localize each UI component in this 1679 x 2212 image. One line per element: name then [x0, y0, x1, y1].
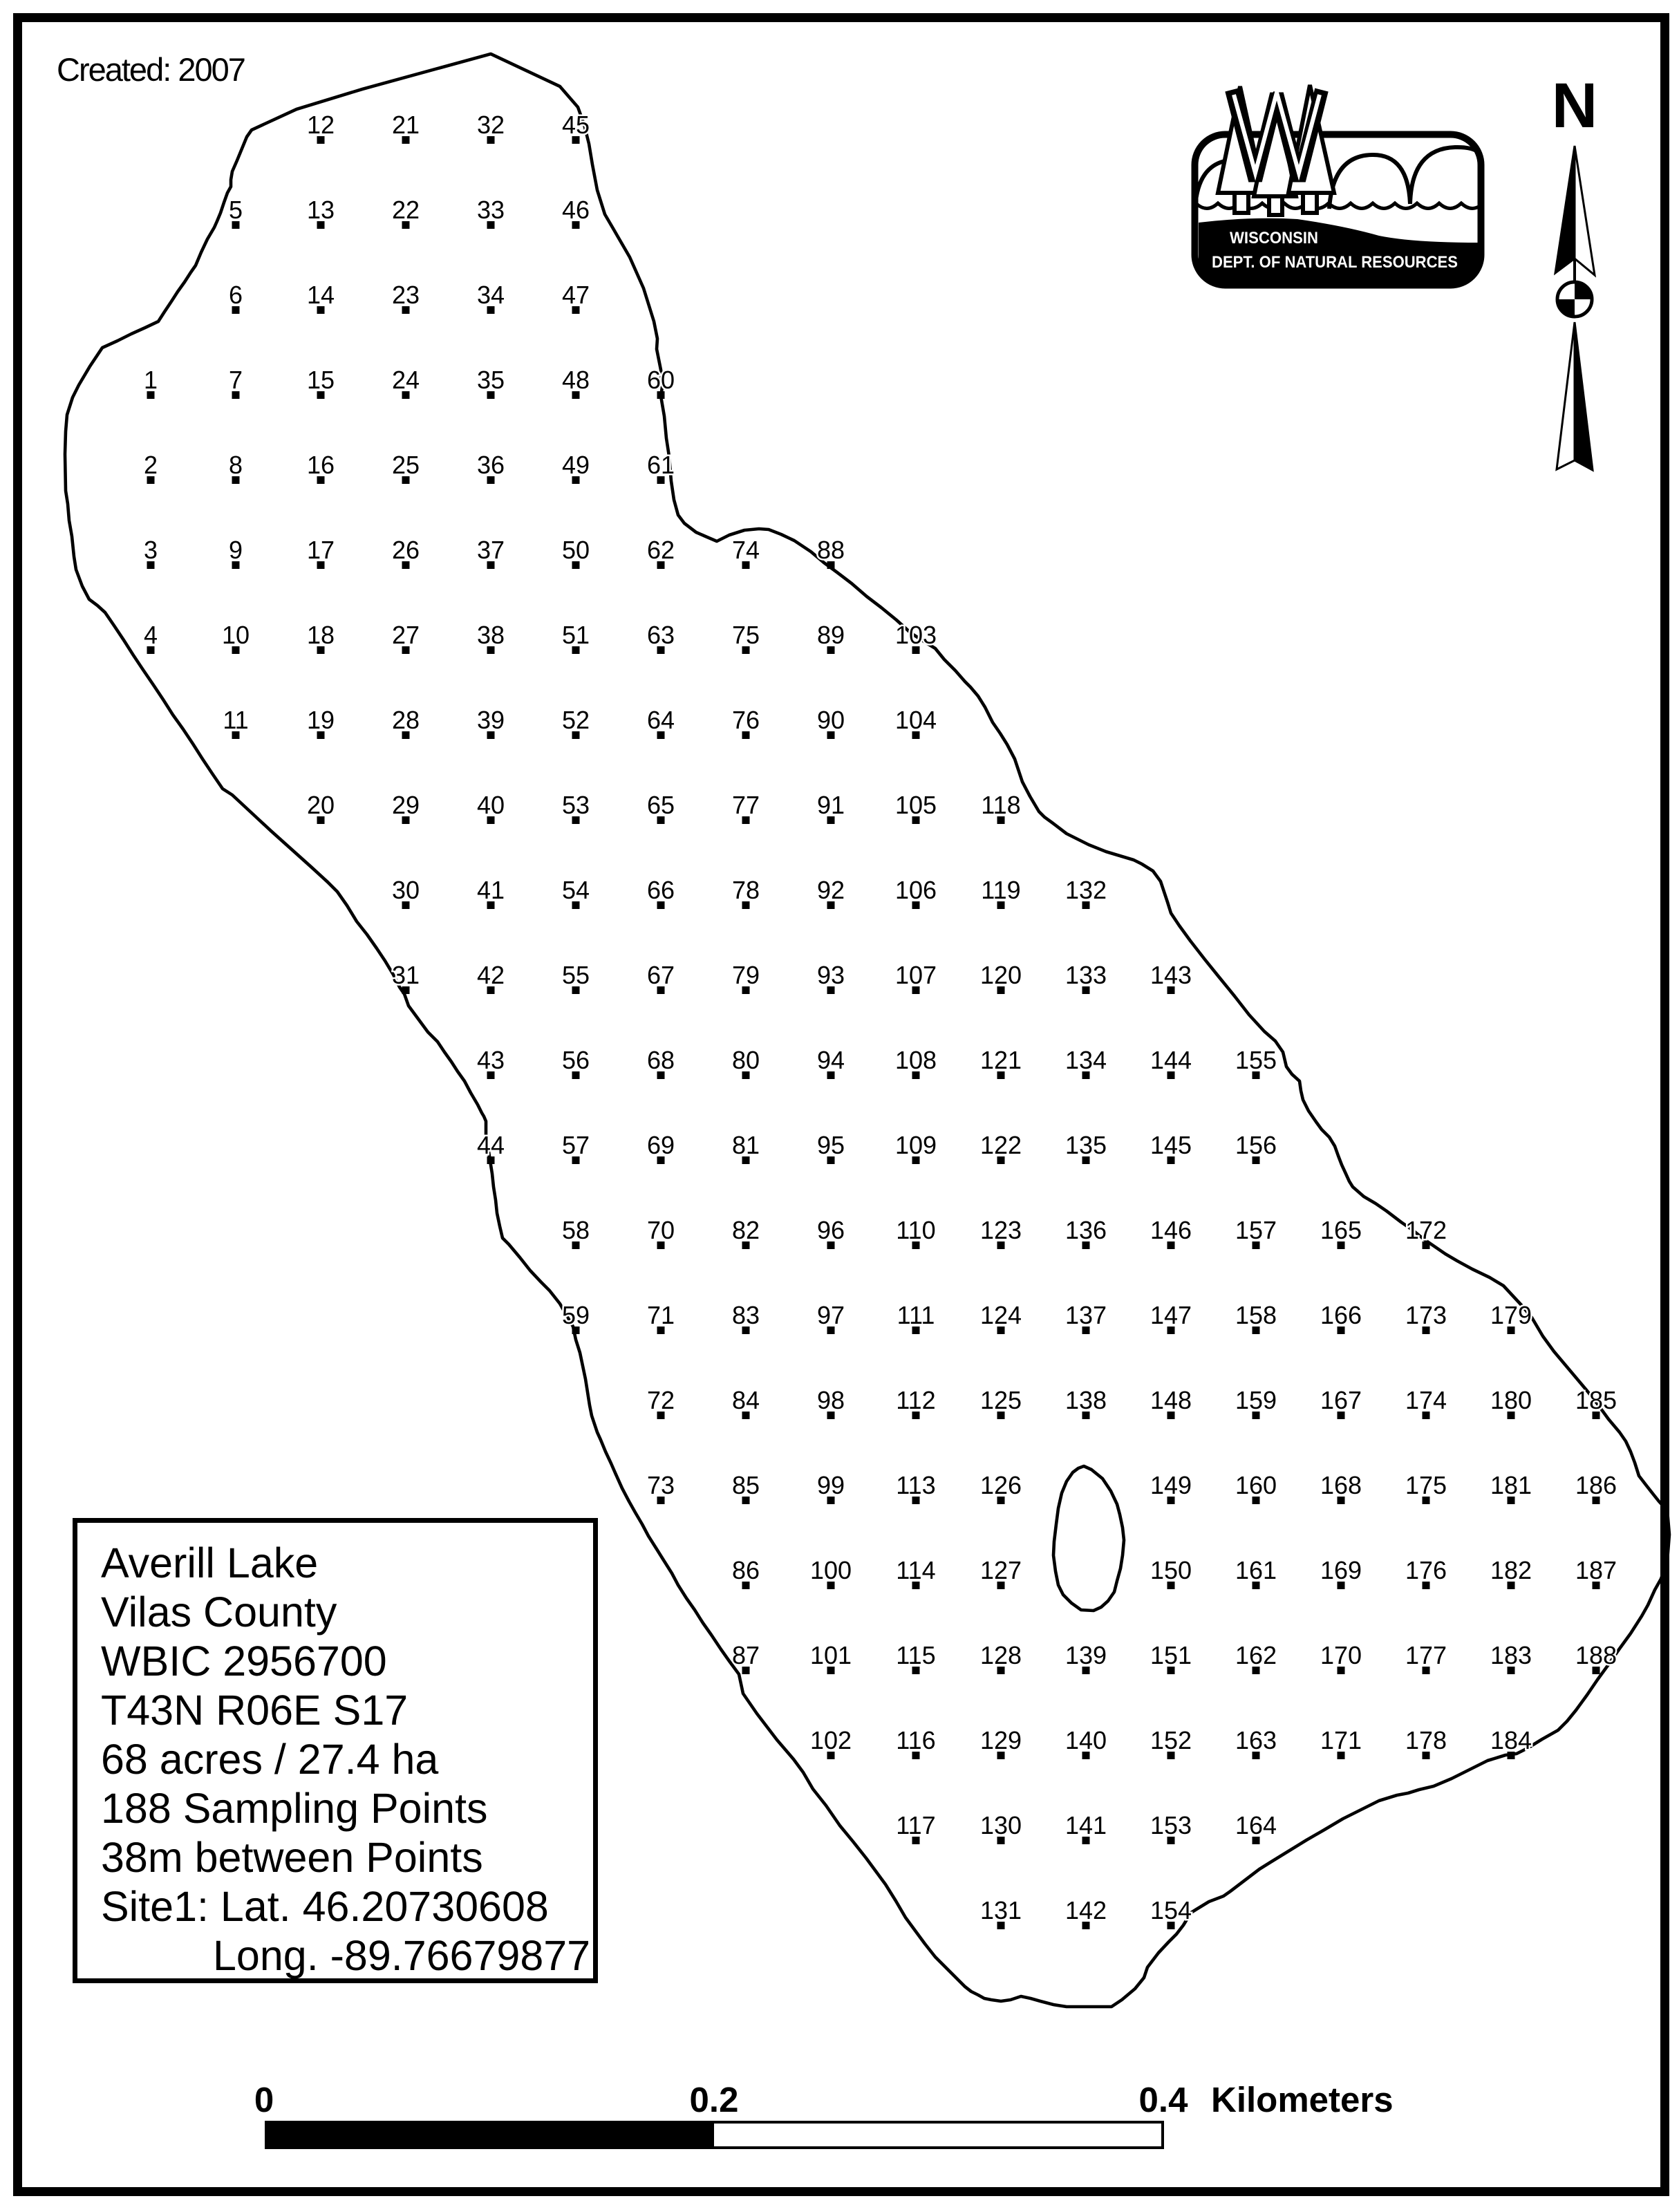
svg-text:95: 95 [817, 1131, 845, 1159]
svg-text:102: 102 [810, 1726, 852, 1754]
svg-text:132: 132 [1065, 876, 1107, 904]
svg-text:32: 32 [477, 111, 505, 139]
svg-text:76: 76 [732, 706, 760, 734]
svg-text:159: 159 [1235, 1386, 1277, 1414]
svg-text:15: 15 [307, 366, 335, 394]
svg-text:DEPT. OF NATURAL RESOURCES: DEPT. OF NATURAL RESOURCES [1212, 253, 1458, 272]
svg-text:58: 58 [562, 1216, 590, 1244]
svg-text:97: 97 [817, 1301, 845, 1329]
svg-text:48: 48 [562, 366, 590, 394]
svg-text:162: 162 [1235, 1641, 1277, 1669]
svg-text:129: 129 [980, 1726, 1022, 1754]
svg-text:56: 56 [562, 1046, 590, 1074]
svg-text:14: 14 [307, 281, 335, 309]
svg-text:125: 125 [980, 1386, 1022, 1414]
svg-text:164: 164 [1235, 1811, 1277, 1839]
svg-text:166: 166 [1320, 1301, 1362, 1329]
svg-text:107: 107 [895, 961, 937, 989]
svg-text:37: 37 [477, 536, 505, 564]
svg-text:87: 87 [732, 1641, 760, 1669]
svg-text:121: 121 [980, 1046, 1022, 1074]
svg-text:188 Sampling Points: 188 Sampling Points [101, 1785, 488, 1832]
svg-text:Site1: Lat. 46.20730608: Site1: Lat. 46.20730608 [101, 1883, 549, 1930]
svg-text:T43N R06E S17: T43N R06E S17 [101, 1687, 408, 1734]
svg-text:59: 59 [562, 1301, 590, 1329]
svg-text:124: 124 [980, 1301, 1022, 1329]
svg-text:22: 22 [392, 196, 420, 224]
svg-text:187: 187 [1575, 1556, 1617, 1584]
svg-text:180: 180 [1490, 1386, 1532, 1414]
svg-text:67: 67 [647, 961, 675, 989]
svg-text:160: 160 [1235, 1471, 1277, 1499]
svg-text:105: 105 [895, 791, 937, 819]
svg-text:77: 77 [732, 791, 760, 819]
svg-text:35: 35 [477, 366, 505, 394]
svg-text:51: 51 [562, 621, 590, 649]
svg-text:41: 41 [477, 876, 505, 904]
svg-text:172: 172 [1405, 1216, 1447, 1244]
svg-text:62: 62 [647, 536, 675, 564]
svg-text:27: 27 [392, 621, 420, 649]
svg-text:111: 111 [897, 1301, 935, 1329]
svg-text:176: 176 [1405, 1556, 1447, 1584]
svg-text:40: 40 [477, 791, 505, 819]
svg-text:33: 33 [477, 196, 505, 224]
svg-text:152: 152 [1150, 1726, 1192, 1754]
svg-text:147: 147 [1150, 1301, 1192, 1329]
svg-text:183: 183 [1490, 1641, 1532, 1669]
svg-text:175: 175 [1405, 1471, 1447, 1499]
svg-text:117: 117 [896, 1811, 935, 1839]
svg-text:109: 109 [895, 1131, 937, 1159]
svg-text:64: 64 [647, 706, 675, 734]
svg-text:12: 12 [307, 111, 335, 139]
svg-text:61: 61 [647, 451, 675, 479]
svg-text:0: 0 [254, 2080, 274, 2119]
svg-text:179: 179 [1490, 1301, 1532, 1329]
svg-text:90: 90 [817, 706, 845, 734]
svg-text:70: 70 [647, 1216, 675, 1244]
svg-text:44: 44 [477, 1131, 505, 1159]
svg-text:57: 57 [562, 1131, 590, 1159]
svg-text:169: 169 [1320, 1556, 1362, 1584]
svg-text:0.4: 0.4 [1139, 2080, 1189, 2119]
svg-text:29: 29 [392, 791, 420, 819]
svg-text:131: 131 [980, 1896, 1022, 1924]
svg-text:88: 88 [817, 536, 845, 564]
svg-text:140: 140 [1065, 1726, 1107, 1754]
svg-text:154: 154 [1150, 1896, 1192, 1924]
svg-text:146: 146 [1150, 1216, 1192, 1244]
svg-text:167: 167 [1320, 1386, 1362, 1414]
svg-text:78: 78 [732, 876, 760, 904]
svg-text:24: 24 [392, 366, 420, 394]
svg-text:145: 145 [1150, 1131, 1192, 1159]
svg-text:36: 36 [477, 451, 505, 479]
svg-text:177: 177 [1405, 1641, 1447, 1669]
svg-text:N: N [1552, 71, 1597, 141]
svg-text:81: 81 [732, 1131, 760, 1159]
svg-text:136: 136 [1065, 1216, 1107, 1244]
svg-text:43: 43 [477, 1046, 505, 1074]
svg-text:7: 7 [229, 366, 243, 394]
svg-text:94: 94 [817, 1046, 845, 1074]
svg-text:Kilometers: Kilometers [1211, 2080, 1394, 2119]
svg-text:49: 49 [562, 451, 590, 479]
svg-text:113: 113 [896, 1471, 935, 1499]
svg-text:163: 163 [1235, 1726, 1277, 1754]
svg-text:84: 84 [732, 1386, 760, 1414]
svg-text:91: 91 [817, 791, 845, 819]
svg-text:114: 114 [896, 1556, 935, 1584]
svg-text:54: 54 [562, 876, 590, 904]
svg-text:Vilas County: Vilas County [101, 1588, 337, 1635]
svg-text:110: 110 [896, 1216, 935, 1244]
svg-text:127: 127 [980, 1556, 1022, 1584]
svg-text:42: 42 [477, 961, 505, 989]
svg-text:80: 80 [732, 1046, 760, 1074]
svg-text:11: 11 [223, 706, 248, 734]
svg-text:153: 153 [1150, 1811, 1192, 1839]
svg-text:50: 50 [562, 536, 590, 564]
svg-text:134: 134 [1065, 1046, 1107, 1074]
svg-text:55: 55 [562, 961, 590, 989]
svg-text:68 acres / 27.4 ha: 68 acres / 27.4 ha [101, 1736, 438, 1783]
svg-text:157: 157 [1235, 1216, 1277, 1244]
svg-text:1: 1 [144, 366, 158, 394]
svg-text:178: 178 [1405, 1726, 1447, 1754]
svg-text:89: 89 [817, 621, 845, 649]
svg-text:99: 99 [817, 1471, 845, 1499]
svg-text:148: 148 [1150, 1386, 1192, 1414]
svg-text:4: 4 [144, 621, 158, 649]
svg-text:WISCONSIN: WISCONSIN [1230, 229, 1318, 247]
svg-text:171: 171 [1320, 1726, 1362, 1754]
svg-text:151: 151 [1150, 1641, 1192, 1669]
svg-text:144: 144 [1150, 1046, 1192, 1074]
svg-text:5: 5 [229, 196, 243, 224]
svg-text:93: 93 [817, 961, 845, 989]
svg-text:39: 39 [477, 706, 505, 734]
svg-text:9: 9 [229, 536, 243, 564]
svg-text:150: 150 [1150, 1556, 1192, 1584]
svg-text:69: 69 [647, 1131, 675, 1159]
svg-text:181: 181 [1490, 1471, 1532, 1499]
svg-text:98: 98 [817, 1386, 845, 1414]
svg-text:25: 25 [392, 451, 420, 479]
svg-text:16: 16 [307, 451, 335, 479]
svg-text:0.2: 0.2 [690, 2080, 739, 2119]
svg-text:18: 18 [307, 621, 335, 649]
svg-text:72: 72 [647, 1386, 675, 1414]
svg-text:158: 158 [1235, 1301, 1277, 1329]
svg-text:139: 139 [1065, 1641, 1107, 1669]
svg-text:Averill Lake: Averill Lake [101, 1539, 318, 1586]
svg-text:28: 28 [392, 706, 420, 734]
svg-text:135: 135 [1065, 1131, 1107, 1159]
svg-text:112: 112 [896, 1386, 935, 1414]
svg-text:63: 63 [647, 621, 675, 649]
svg-text:38m between Points: 38m between Points [101, 1834, 483, 1881]
svg-text:103: 103 [895, 621, 937, 649]
svg-text:115: 115 [896, 1641, 935, 1669]
svg-text:17: 17 [307, 536, 335, 564]
svg-text:123: 123 [980, 1216, 1022, 1244]
svg-text:137: 137 [1065, 1301, 1107, 1329]
svg-text:185: 185 [1575, 1386, 1617, 1414]
svg-text:141: 141 [1065, 1811, 1107, 1839]
svg-text:52: 52 [562, 706, 590, 734]
svg-text:116: 116 [896, 1726, 935, 1754]
svg-text:38: 38 [477, 621, 505, 649]
svg-text:142: 142 [1065, 1896, 1107, 1924]
svg-text:82: 82 [732, 1216, 760, 1244]
svg-text:120: 120 [980, 961, 1022, 989]
svg-text:92: 92 [817, 876, 845, 904]
svg-text:86: 86 [732, 1556, 760, 1584]
svg-text:170: 170 [1320, 1641, 1362, 1669]
svg-text:188: 188 [1575, 1641, 1617, 1669]
svg-text:108: 108 [895, 1046, 937, 1074]
svg-text:65: 65 [647, 791, 675, 819]
svg-text:31: 31 [392, 961, 420, 989]
svg-text:143: 143 [1150, 961, 1192, 989]
svg-text:173: 173 [1405, 1301, 1447, 1329]
svg-text:122: 122 [980, 1131, 1022, 1159]
svg-text:174: 174 [1405, 1386, 1447, 1414]
svg-text:60: 60 [647, 366, 675, 394]
svg-text:104: 104 [895, 706, 937, 734]
svg-text:3: 3 [144, 536, 158, 564]
svg-text:168: 168 [1320, 1471, 1362, 1499]
svg-text:30: 30 [392, 876, 420, 904]
svg-text:6: 6 [229, 281, 243, 309]
svg-text:96: 96 [817, 1216, 845, 1244]
svg-text:184: 184 [1490, 1726, 1532, 1754]
svg-text:Created: 2007: Created: 2007 [57, 51, 245, 88]
svg-text:53: 53 [562, 791, 590, 819]
svg-text:8: 8 [229, 451, 243, 479]
svg-text:182: 182 [1490, 1556, 1532, 1584]
svg-text:75: 75 [732, 621, 760, 649]
svg-text:156: 156 [1235, 1131, 1277, 1159]
svg-text:118: 118 [981, 791, 1020, 819]
svg-text:138: 138 [1065, 1386, 1107, 1414]
svg-text:10: 10 [222, 621, 250, 649]
svg-text:85: 85 [732, 1471, 760, 1499]
svg-text:68: 68 [647, 1046, 675, 1074]
svg-text:47: 47 [562, 281, 590, 309]
svg-text:165: 165 [1320, 1216, 1362, 1244]
svg-text:186: 186 [1575, 1471, 1617, 1499]
svg-text:74: 74 [732, 536, 760, 564]
svg-text:106: 106 [895, 876, 937, 904]
svg-text:161: 161 [1235, 1556, 1277, 1584]
svg-text:133: 133 [1065, 961, 1107, 989]
svg-text:WBIC 2956700: WBIC 2956700 [101, 1638, 387, 1685]
svg-text:83: 83 [732, 1301, 760, 1329]
svg-text:101: 101 [810, 1641, 852, 1669]
svg-text:45: 45 [562, 111, 590, 139]
svg-text:149: 149 [1150, 1471, 1192, 1499]
svg-text:71: 71 [647, 1301, 675, 1329]
svg-text:73: 73 [647, 1471, 675, 1499]
svg-text:130: 130 [980, 1811, 1022, 1839]
svg-text:34: 34 [477, 281, 505, 309]
svg-text:46: 46 [562, 196, 590, 224]
svg-text:66: 66 [647, 876, 675, 904]
svg-text:20: 20 [307, 791, 335, 819]
svg-text:119: 119 [981, 876, 1020, 904]
svg-text:19: 19 [307, 706, 335, 734]
svg-text:13: 13 [307, 196, 335, 224]
svg-text:2: 2 [144, 451, 158, 479]
svg-text:21: 21 [392, 111, 420, 139]
svg-text:100: 100 [810, 1556, 852, 1584]
svg-text:128: 128 [980, 1641, 1022, 1669]
svg-text:126: 126 [980, 1471, 1022, 1499]
svg-text:Long. -89.76679877: Long. -89.76679877 [213, 1932, 590, 1979]
svg-text:23: 23 [392, 281, 420, 309]
svg-text:155: 155 [1235, 1046, 1277, 1074]
svg-text:79: 79 [732, 961, 760, 989]
svg-text:26: 26 [392, 536, 420, 564]
